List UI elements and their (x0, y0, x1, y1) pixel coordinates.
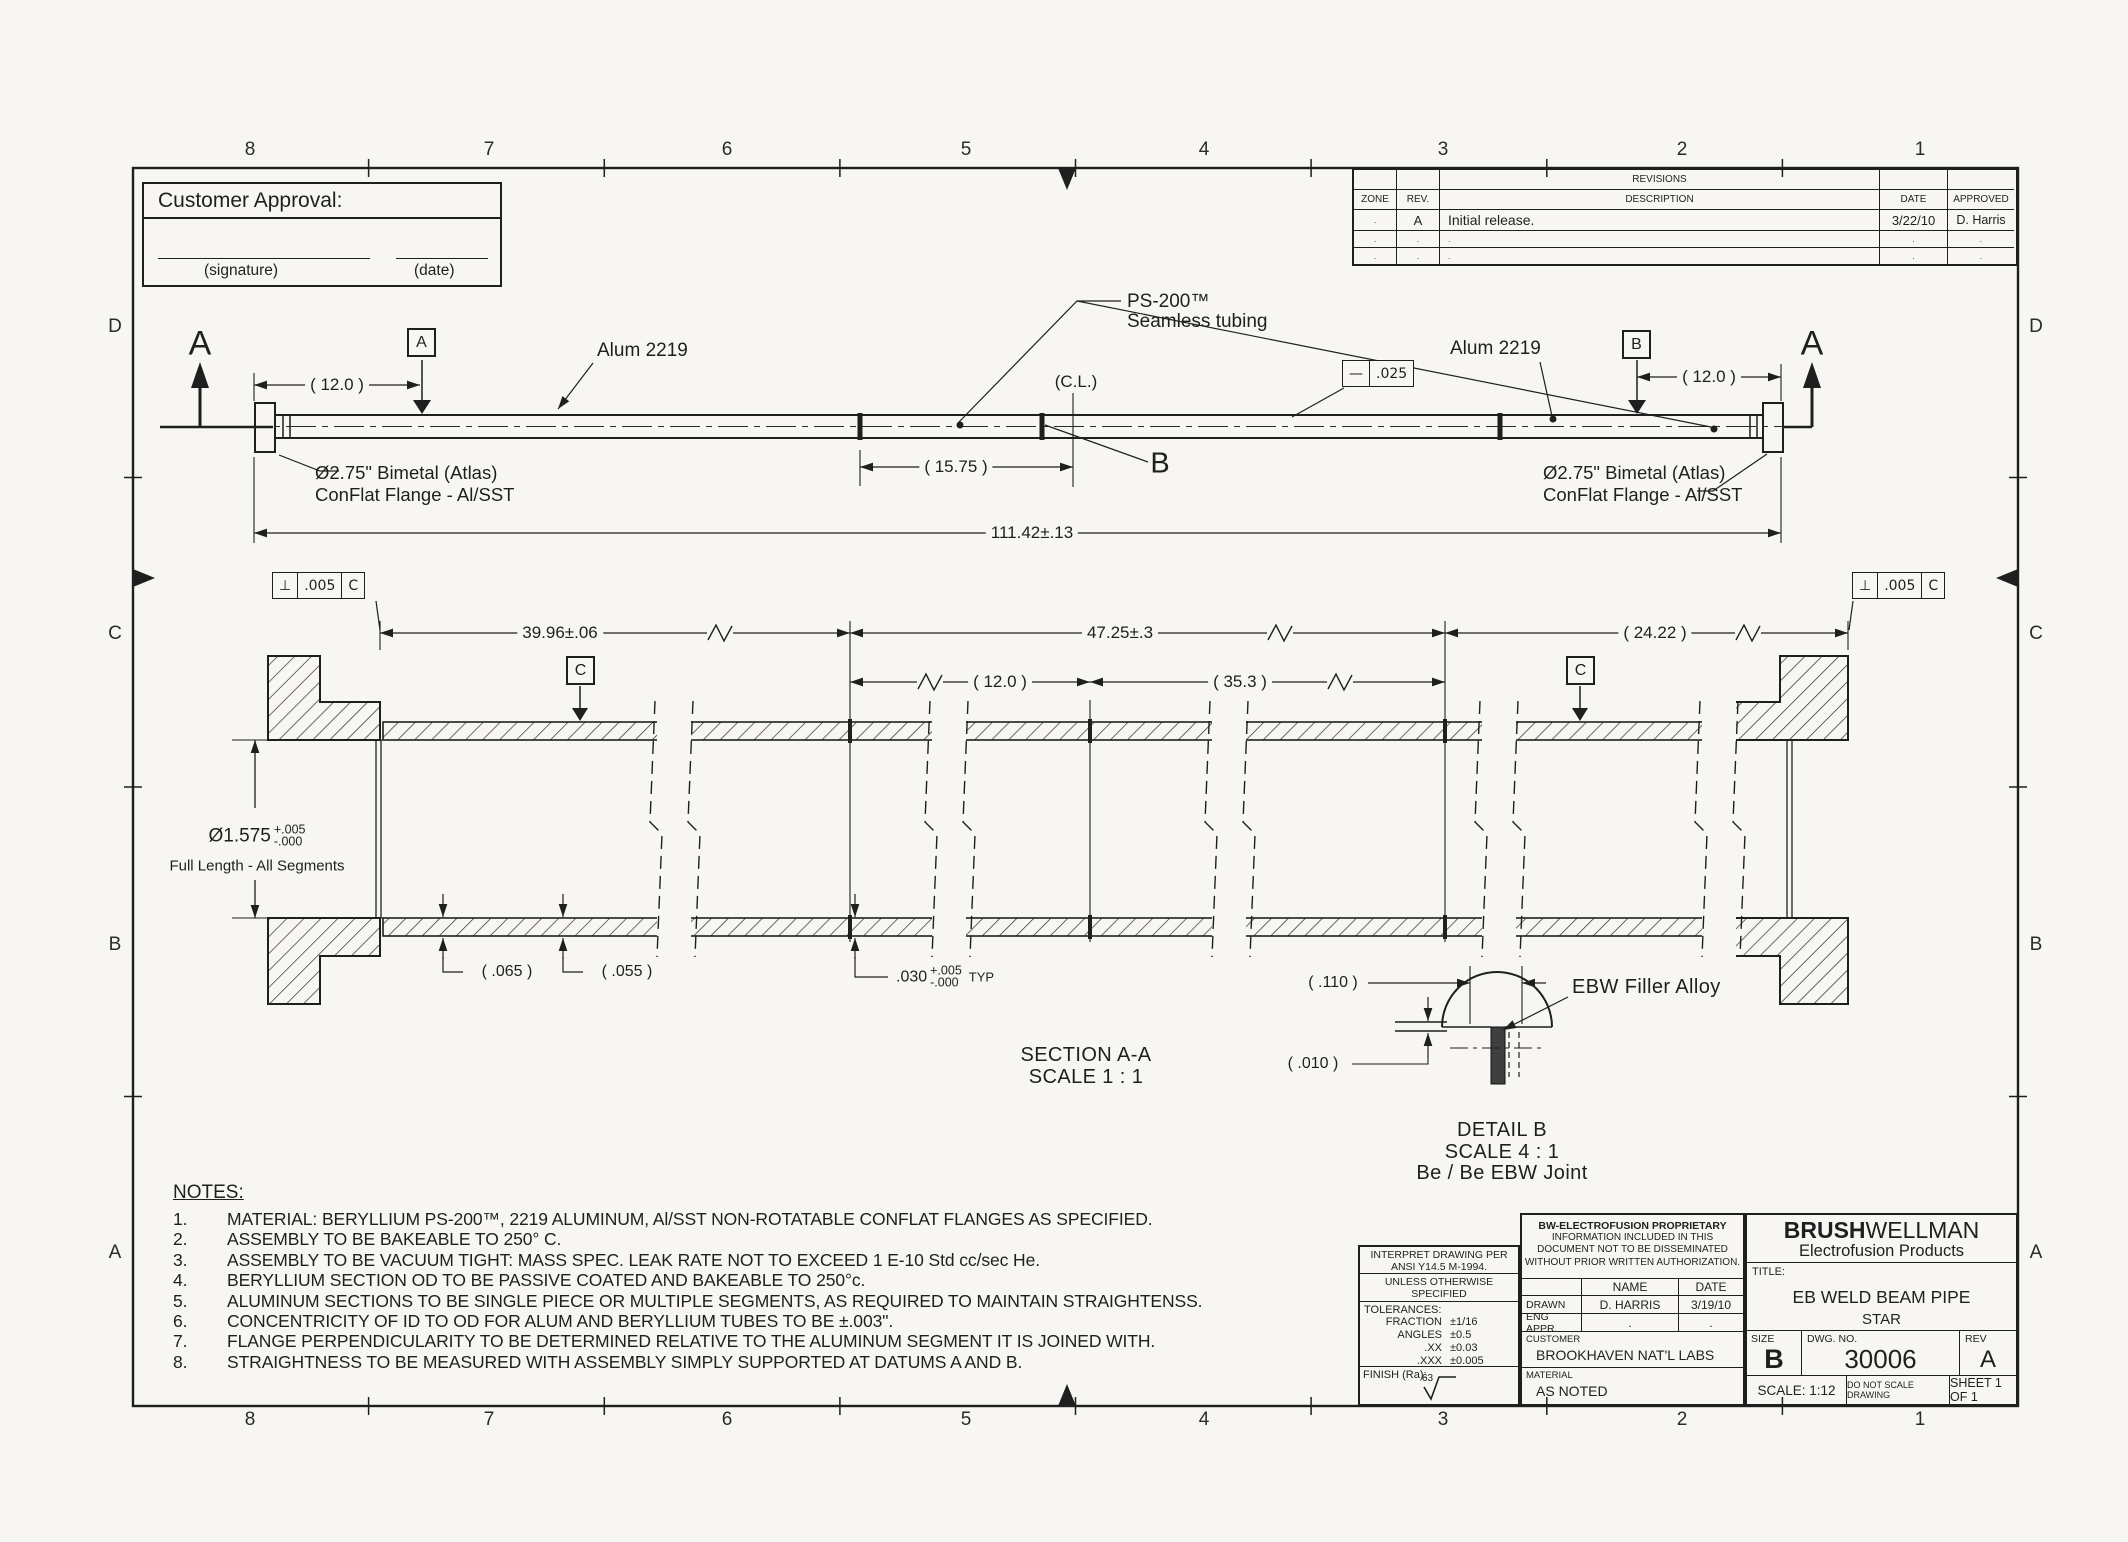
note-number: 5. (173, 1291, 227, 1311)
brand-bold: BRUSH (1784, 1217, 1866, 1243)
tolerance-row: .XX±0.03 (1364, 1342, 1518, 1355)
dim-overall-length: 111.42±.13 (986, 523, 1078, 543)
units-cell: UNLESS OTHERWISE SPECIFIED DIMENSIONS AR… (1360, 1274, 1518, 1302)
section-view-drawing (232, 601, 1853, 1004)
rev-cell: REV A (1960, 1331, 2016, 1375)
note-number: 3. (173, 1250, 227, 1270)
revisions-title: REVISIONS (1440, 170, 1880, 190)
interpret-cell: INTERPRET DRAWING PER ANSI Y14.5 M-1994. (1360, 1247, 1518, 1274)
label-alum-2219-left: Alum 2219 (597, 340, 688, 362)
tol-val: ±0.5 (1450, 1329, 1471, 1342)
brand-rest: WELLMAN (1866, 1217, 1980, 1243)
fcf-right-datum: C (1922, 573, 1944, 598)
note-number: 4. (173, 1270, 227, 1290)
note-item: 1.MATERIAL: BERYLLIUM PS-200™, 2219 ALUM… (173, 1209, 1202, 1229)
zone-top-5: 5 (961, 139, 972, 161)
detail-caption-3: Be / Be EBW Joint (1416, 1162, 1587, 1185)
dim-12-left: ( 12.0 ) (305, 375, 369, 395)
tol-val: ±0.03 (1450, 1342, 1477, 1355)
revision-row-desc: . (1440, 248, 1880, 264)
note-number: 1. (173, 1209, 227, 1229)
title-cell: TITLE: EB WELD BEAM PIPE STAR (1747, 1263, 2016, 1331)
dim-030-typ: .030 +.005 -.000 TYP (891, 966, 999, 989)
fcf-left-datum: C (342, 573, 364, 598)
zone-left-c: C (108, 623, 122, 645)
label-alum-2219-right: Alum 2219 (1450, 338, 1541, 360)
drawing-subtitle: STAR (1747, 1311, 2016, 1328)
proprietary-line1: BW-ELECTROFUSION PROPRIETARY (1522, 1220, 1743, 1232)
finish-cell: FINISH (Ra): 63 (1360, 1367, 1518, 1404)
zone-bottom-2: 2 (1677, 1409, 1688, 1431)
note-number: 8. (173, 1352, 227, 1372)
dia-note: Full Length - All Segments (164, 858, 349, 875)
tol-key: .XXX (1364, 1355, 1442, 1367)
revisions-col-rev: REV. (1397, 190, 1440, 210)
brand-sub: Electrofusion Products (1747, 1242, 2016, 1261)
material-label: MATERIAL (1522, 1368, 1743, 1381)
flange-sections (268, 656, 1848, 1004)
revisions-table: REVISIONS ZONE REV. DESCRIPTION DATE APP… (1352, 168, 2018, 266)
note-item: 6.CONCENTRICITY OF ID TO OD FOR ALUM AND… (173, 1311, 1202, 1331)
dim-030-tolerance: +.005 -.000 (930, 966, 962, 989)
section-caption-2: SCALE 1 : 1 (1029, 1066, 1143, 1089)
perpendicularity-icon: ⊥ (1853, 573, 1878, 598)
perpendicularity-icon: ⊥ (273, 573, 298, 598)
note-text: MATERIAL: BERYLLIUM PS-200™, 2219 ALUMIN… (227, 1209, 1153, 1229)
signature-line (158, 258, 370, 259)
revision-row-desc: . (1440, 231, 1880, 248)
customer-label: CUSTOMER (1522, 1332, 1743, 1345)
proprietary-cell: BW-ELECTROFUSION PROPRIETARY INFORMATION… (1522, 1215, 1743, 1279)
flange-right-label-1: Ø2.75" Bimetal (Atlas) (1543, 462, 1725, 484)
sheet-cell: SHEET 1 OF 1 (1950, 1376, 2016, 1404)
title-label: TITLE: (1752, 1266, 1785, 1278)
fcf-perpendicularity-left: ⊥ .005 C (272, 572, 365, 599)
section-arrow-label-right: A (1801, 325, 1824, 364)
zone-right-c: C (2029, 623, 2043, 645)
note-item: 4.BERYLLIUM SECTION OD TO BE PASSIVE COA… (173, 1270, 1202, 1290)
eng-appr-label: ENG APPR. (1522, 1314, 1582, 1331)
tolerance-row: FRACTION±1/16 (1364, 1316, 1518, 1329)
tolerance-block: INTERPRET DRAWING PER ANSI Y14.5 M-1994.… (1358, 1245, 1520, 1406)
revision-row-rev: . (1397, 231, 1440, 248)
tolerance-row: .XXX±0.005 (1364, 1355, 1518, 1367)
zone-bottom-6: 6 (722, 1409, 733, 1431)
eng-appr-row: ENG APPR. . . (1522, 1314, 1743, 1332)
revision-row-rev: . (1397, 248, 1440, 264)
rev-label: REV (1965, 1333, 1987, 1345)
drawing-sheet: 8 7 6 5 4 3 2 1 8 7 6 5 4 3 2 1 D C B A … (0, 0, 2128, 1542)
zone-bottom-7: 7 (484, 1409, 495, 1431)
label-seamless-tubing: Seamless tubing (1127, 311, 1267, 333)
rev-value: A (1960, 1346, 2016, 1374)
zone-bottom-1: 1 (1915, 1409, 1926, 1431)
dim-110: ( .110 ) (1303, 974, 1363, 992)
zone-top-4: 4 (1199, 139, 1210, 161)
revisions-cell (1354, 170, 1397, 190)
revision-row-rev: A (1397, 210, 1440, 231)
flange-left-label-2: ConFlat Flange - Al/SST (315, 484, 514, 506)
revision-row-zone: . (1354, 248, 1397, 264)
tolerances-cell: TOLERANCES: FRACTION±1/16 ANGLES±0.5 .XX… (1360, 1302, 1518, 1367)
fcf-right-value: .005 (1878, 573, 1922, 598)
datum-flag-c-left: C (566, 656, 595, 685)
fcf-left-value: .005 (298, 573, 342, 598)
dwg-no-value: 30006 (1802, 1344, 1959, 1375)
company-name: BRUSHWELLMAN (1747, 1218, 2016, 1242)
revision-row-zone: . (1354, 210, 1397, 231)
revisions-cell (1948, 170, 2014, 190)
interpret-line1: INTERPRET DRAWING PER (1360, 1249, 1518, 1261)
drawn-name: D. HARRIS (1582, 1296, 1679, 1313)
signature-label: (signature) (204, 262, 278, 280)
tol-val: ±1/16 (1450, 1316, 1477, 1329)
note-text: ASSEMBLY TO BE VACUUM TIGHT: MASS SPEC. … (227, 1250, 1040, 1270)
customer-approval-box: Customer Approval: (signature) (date) (142, 182, 502, 287)
material-cell: MATERIAL AS NOTED (1522, 1368, 1743, 1404)
note-item: 8.STRAIGHTNESS TO BE MEASURED WITH ASSEM… (173, 1352, 1202, 1372)
note-text: ASSEMBLY TO BE BAKEABLE TO 250° C. (227, 1229, 561, 1249)
note-item: 7.FLANGE PERPENDICULARITY TO BE DETERMIN… (173, 1331, 1202, 1351)
units-line1: UNLESS OTHERWISE SPECIFIED (1360, 1276, 1518, 1300)
note-text: STRAIGHTNESS TO BE MEASURED WITH ASSEMBL… (227, 1352, 1022, 1372)
drawn-row: DRAWN D. HARRIS 3/19/10 (1522, 1296, 1743, 1314)
zone-top-3: 3 (1438, 139, 1449, 161)
dwg-no-cell: DWG. NO. 30006 (1802, 1331, 1960, 1375)
tolerances-title: TOLERANCES: (1364, 1304, 1518, 1316)
revisions-cell (1880, 170, 1948, 190)
dwg-no-label: DWG. NO. (1807, 1333, 1857, 1345)
revision-row-appr: . (1948, 231, 2014, 248)
dim-030-value: .030 (896, 968, 927, 986)
revisions-col-date: DATE (1880, 190, 1948, 210)
customer-approval-title: Customer Approval: (144, 184, 500, 219)
tol-key: .XX (1364, 1342, 1442, 1355)
title-block-middle: BW-ELECTROFUSION PROPRIETARY INFORMATION… (1520, 1213, 1745, 1406)
drawing-title: EB WELD BEAM PIPE (1747, 1287, 2016, 1308)
zone-bottom-8: 8 (245, 1409, 256, 1431)
revisions-col-appr: APPROVED (1948, 190, 2014, 210)
datum-flag-a: A (407, 328, 436, 357)
note-number: 6. (173, 1311, 227, 1331)
surface-finish-icon (1418, 1375, 1460, 1401)
revisions-col-zone: ZONE (1354, 190, 1397, 210)
dim-030-minus: -.000 (930, 977, 962, 989)
dim-24-22: ( 24.22 ) (1618, 623, 1691, 643)
dim-39-96: 39.96±.06 (517, 623, 603, 643)
zone-top-8: 8 (245, 139, 256, 161)
zone-bottom-4: 4 (1199, 1409, 1210, 1431)
zone-top-2: 2 (1677, 139, 1688, 161)
datum-flag-b: B (1622, 330, 1651, 359)
size-label: SIZE (1751, 1333, 1774, 1345)
material-value: AS NOTED (1522, 1383, 1743, 1399)
tol-val: ±0.005 (1450, 1355, 1484, 1367)
proprietary-line3: DOCUMENT NOT TO BE DISSEMINATED (1522, 1244, 1743, 1256)
dim-030-suffix: TYP (969, 970, 994, 985)
section-caption-1: SECTION A-A (1020, 1044, 1151, 1067)
zone-right-a: A (2030, 1242, 2043, 1264)
note-item: 5.ALUMINUM SECTIONS TO BE SINGLE PIECE O… (173, 1291, 1202, 1311)
dia-value: Ø1.575 (209, 825, 271, 847)
revisions-cell (1397, 170, 1440, 190)
note-item: 3.ASSEMBLY TO BE VACUUM TIGHT: MASS SPEC… (173, 1250, 1202, 1270)
zone-bottom-3: 3 (1438, 1409, 1449, 1431)
zone-top-1: 1 (1915, 139, 1926, 161)
revision-row-zone: . (1354, 231, 1397, 248)
detail-caption-1: DETAIL B (1457, 1119, 1547, 1142)
zone-right-b: B (2030, 934, 2043, 956)
fcf-straightness: — .025 (1342, 360, 1414, 387)
proprietary-line2: INFORMATION INCLUDED IN THIS (1522, 1232, 1743, 1244)
detail-b-drawing (1352, 966, 1568, 1084)
eng-appr-name: . (1582, 1314, 1679, 1331)
revisions-col-desc: DESCRIPTION (1440, 190, 1880, 210)
zone-left-d: D (108, 316, 122, 338)
flange-right-label-2: ConFlat Flange - Al/SST (1543, 484, 1742, 506)
scale-cell: SCALE: 1:12 (1747, 1376, 1847, 1404)
section-arrow-label-left: A (189, 325, 212, 364)
datum-flag-c-right: C (1566, 656, 1595, 685)
dim-065: ( .065 ) (477, 963, 538, 981)
dim-055: ( .055 ) (597, 963, 658, 981)
customer-cell: CUSTOMER BROOKHAVEN NAT'L LABS (1522, 1332, 1743, 1368)
revision-row-appr: D. Harris (1948, 210, 2014, 231)
fcf-straightness-value: .025 (1370, 361, 1413, 386)
interpret-line2: ANSI Y14.5 M-1994. (1360, 1261, 1518, 1273)
note-text: BERYLLIUM SECTION OD TO BE PASSIVE COATE… (227, 1270, 865, 1290)
size-cell: SIZE B (1747, 1331, 1802, 1375)
label-ebw-filler-alloy: EBW Filler Alloy (1572, 976, 1721, 999)
drawn-label: DRAWN (1522, 1296, 1582, 1313)
label-joint-b: B (1150, 448, 1169, 481)
revision-row-date: . (1880, 231, 1948, 248)
zone-bottom-5: 5 (961, 1409, 972, 1431)
eng-appr-date: . (1679, 1314, 1743, 1331)
customer-value: BROOKHAVEN NAT'L LABS (1522, 1347, 1743, 1363)
note-text: FLANGE PERPENDICULARITY TO BE DETERMINED… (227, 1331, 1155, 1351)
dim-15-75: ( 15.75 ) (919, 457, 992, 477)
dim-35-3: ( 35.3 ) (1208, 672, 1272, 692)
proprietary-line4: WITHOUT PRIOR WRITTEN AUTHORIZATION. (1522, 1257, 1743, 1269)
note-text: ALUMINUM SECTIONS TO BE SINGLE PIECE OR … (227, 1291, 1202, 1311)
revision-row-date: 3/22/10 (1880, 210, 1948, 231)
dia-tolerance: +.005 -.000 (274, 825, 306, 848)
zone-right-d: D (2029, 316, 2043, 338)
title-block-right: BRUSHWELLMAN Electrofusion Products TITL… (1745, 1213, 2018, 1406)
name-date-header: NAME DATE (1522, 1279, 1743, 1296)
date-line (396, 258, 488, 259)
dim-12-section: ( 12.0 ) (968, 672, 1032, 692)
tol-key: FRACTION (1364, 1316, 1442, 1329)
dim-12-right: ( 12.0 ) (1677, 367, 1741, 387)
size-dwg-rev-row: SIZE B DWG. NO. 30006 REV A (1747, 1331, 2016, 1376)
zone-top-6: 6 (722, 139, 733, 161)
col-name: NAME (1582, 1279, 1679, 1295)
tolerance-row: ANGLES±0.5 (1364, 1329, 1518, 1342)
date-label: (date) (414, 262, 455, 280)
dim-010: ( .010 ) (1283, 1055, 1344, 1073)
revision-row-desc: Initial release. (1440, 210, 1880, 231)
revision-row-appr: . (1948, 248, 2014, 264)
fcf-perpendicularity-right: ⊥ .005 C (1852, 572, 1945, 599)
dim-inner-diameter: Ø1.575 +.005 -.000 (204, 825, 311, 848)
detail-caption-2: SCALE 4 : 1 (1445, 1141, 1559, 1164)
notes-block: NOTES: 1.MATERIAL: BERYLLIUM PS-200™, 22… (173, 1182, 1202, 1372)
tol-key: ANGLES (1364, 1329, 1442, 1342)
col-date: DATE (1679, 1279, 1743, 1295)
note-number: 7. (173, 1331, 227, 1351)
note-number: 2. (173, 1229, 227, 1249)
label-ps200: PS-200™ (1127, 291, 1209, 313)
label-centerline: (C.L.) (1050, 372, 1103, 392)
no-scale-cell: DO NOT SCALE DRAWING (1847, 1376, 1950, 1404)
scale-row: SCALE: 1:12 DO NOT SCALE DRAWING SHEET 1… (1747, 1376, 2016, 1404)
straightness-icon: — (1343, 361, 1370, 386)
note-text: CONCENTRICITY OF ID TO OD FOR ALUM AND B… (227, 1311, 893, 1331)
revision-row-date: . (1880, 248, 1948, 264)
drawn-date: 3/19/10 (1679, 1296, 1743, 1313)
empty-cell (1522, 1279, 1582, 1295)
dia-tol-minus: -.000 (274, 836, 306, 848)
zone-left-b: B (109, 934, 122, 956)
zone-top-7: 7 (484, 139, 495, 161)
zone-left-a: A (109, 1242, 122, 1264)
dim-47-25: 47.25±.3 (1082, 623, 1158, 643)
notes-title: NOTES: (173, 1182, 1202, 1204)
note-item: 2.ASSEMBLY TO BE BAKEABLE TO 250° C. (173, 1229, 1202, 1249)
size-value: B (1747, 1344, 1801, 1375)
flange-left-label-1: Ø2.75" Bimetal (Atlas) (315, 462, 497, 484)
brand-cell: BRUSHWELLMAN Electrofusion Products (1747, 1215, 2016, 1263)
